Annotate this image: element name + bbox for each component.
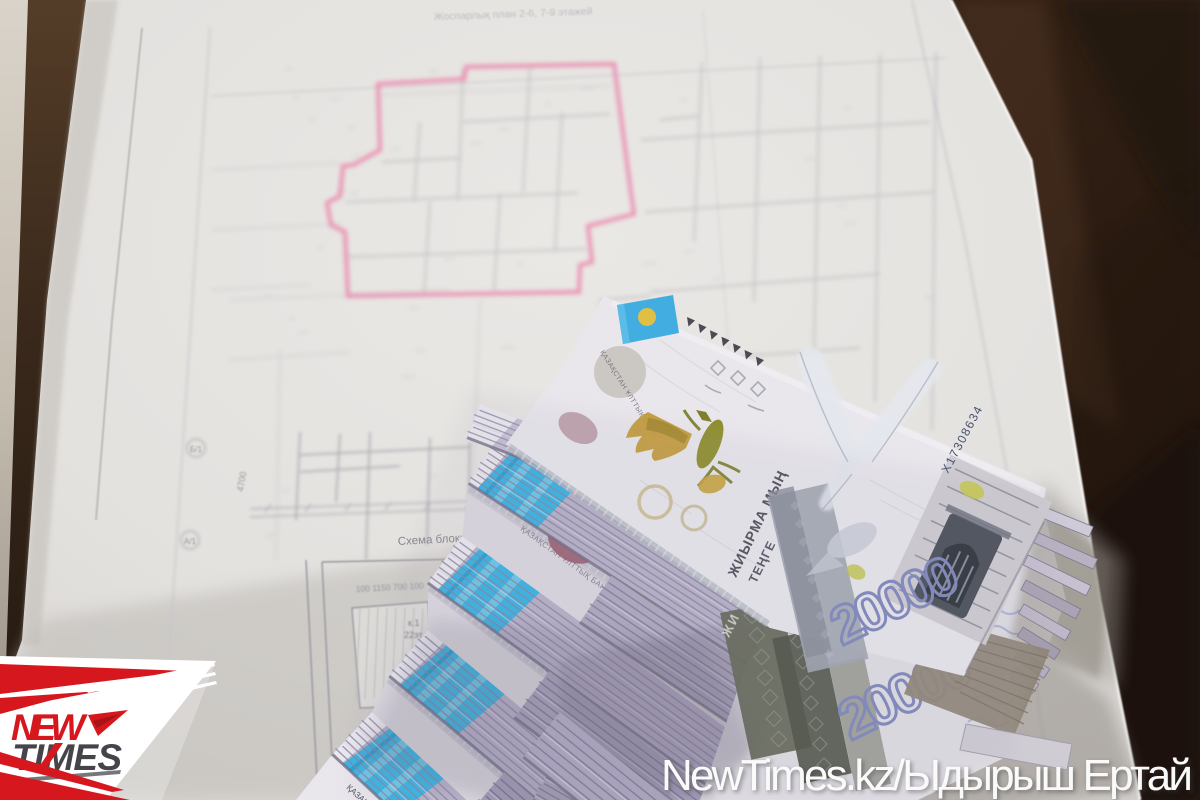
- svg-text:А/1: А/1: [184, 537, 197, 546]
- svg-text:NewTimes.kz/Ыдырыш Ертай: NewTimes.kz/Ыдырыш Ертай: [661, 751, 1193, 800]
- svg-text:Б/1: Б/1: [190, 445, 202, 454]
